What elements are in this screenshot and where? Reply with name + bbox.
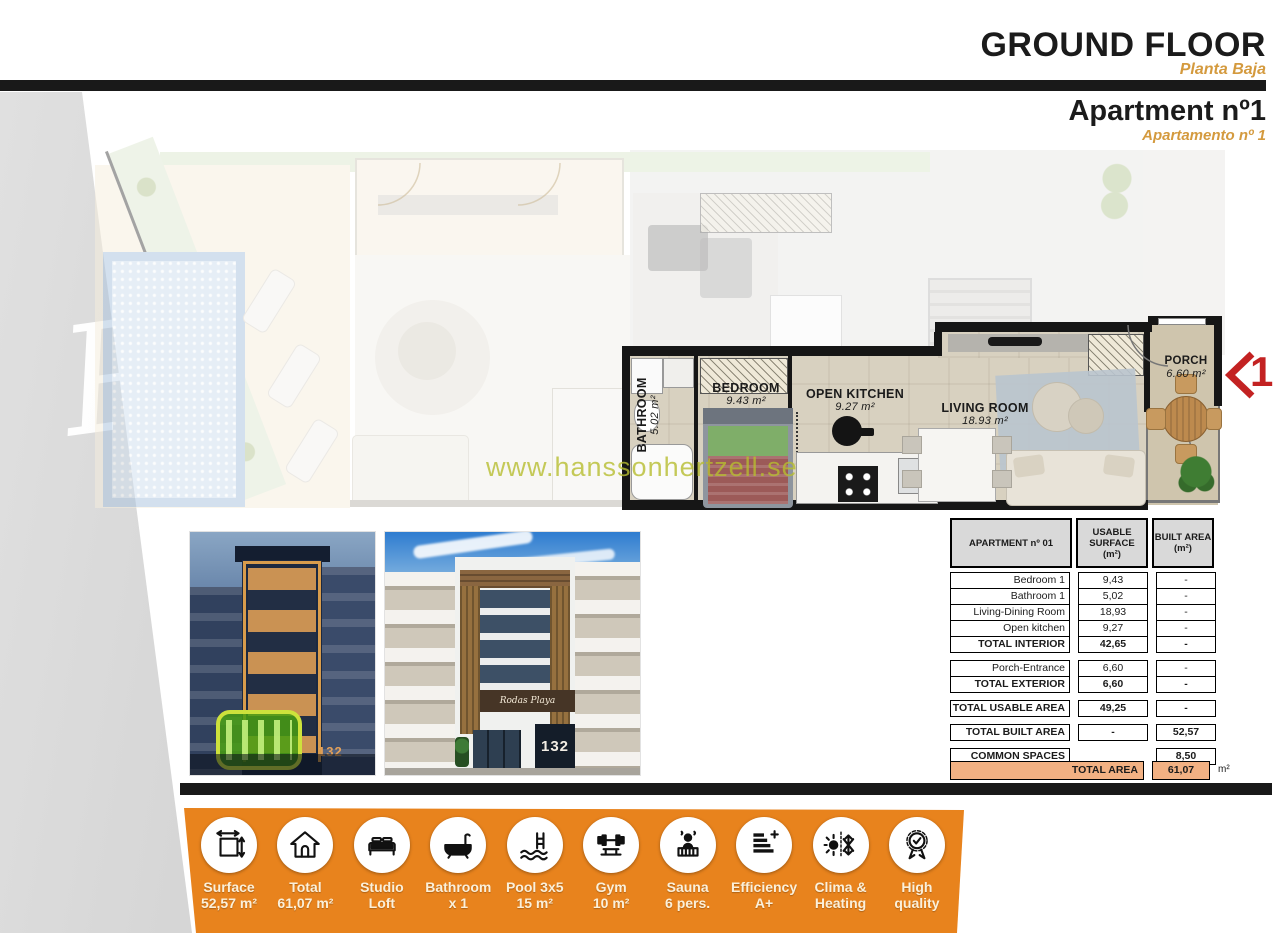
swimming-pool xyxy=(103,252,245,507)
total-area-value: 61,07 xyxy=(1152,761,1210,780)
building-photo-night: 132 xyxy=(190,532,375,775)
table-column: 6,606,60 xyxy=(1078,660,1148,693)
porch-chair xyxy=(1146,408,1166,430)
table-cell: Living-Dining Room xyxy=(951,604,1069,620)
feature-label: Surface xyxy=(192,879,266,895)
table-group: Bedroom 1Bathroom 1Living-Dining RoomOpe… xyxy=(950,572,1230,653)
climate-icon xyxy=(813,817,869,873)
wall xyxy=(1214,316,1222,406)
table-cell: 42,65 xyxy=(1079,636,1147,652)
sign-text: Rodas Playa xyxy=(500,696,556,706)
feature-label: Total xyxy=(268,879,342,895)
feature-label: Studio xyxy=(345,879,419,895)
porch-plant xyxy=(1176,452,1216,496)
table-cell: - xyxy=(1079,725,1147,740)
room-area: 9.27 m² xyxy=(795,401,915,414)
bed-headboard xyxy=(703,408,793,424)
chair xyxy=(992,470,1012,488)
chair xyxy=(902,470,922,488)
cloud xyxy=(413,532,534,559)
brochure-page: GROUND FLOOR Planta Baja Apartment nº1 A… xyxy=(0,0,1280,933)
table-cell: - xyxy=(1157,701,1215,716)
glass-balconies xyxy=(480,590,550,690)
table-column: Bedroom 1Bathroom 1Living-Dining RoomOpe… xyxy=(950,572,1070,653)
total-area-label: TOTAL AREA xyxy=(1072,764,1138,776)
room-area: 6.60 m² xyxy=(1158,368,1214,381)
table-cell: - xyxy=(1157,676,1215,692)
table-column: 49,25 xyxy=(1078,700,1148,717)
table-column: ----- xyxy=(1156,572,1216,653)
feature-value: x 1 xyxy=(421,895,495,911)
header-line: APARTMENT nº 01 xyxy=(952,538,1070,549)
table-cell: - xyxy=(1157,636,1215,652)
room-name: BEDROOM xyxy=(712,381,779,395)
wall xyxy=(622,346,630,510)
sauna-icon xyxy=(660,817,716,873)
tv xyxy=(988,337,1042,346)
table-cell: 5,02 xyxy=(1079,588,1147,604)
table-group: Porch-EntranceTOTAL EXTERIOR6,606,60-- xyxy=(950,660,1230,693)
porch-table xyxy=(1163,396,1209,442)
total-area-unit: m² xyxy=(1218,764,1230,775)
feature-sauna: Sauna 6 pers. xyxy=(651,817,725,911)
area-table-groups: Bedroom 1Bathroom 1Living-Dining RoomOpe… xyxy=(950,572,1230,772)
room-label-bedroom: BEDROOM 9.43 m² xyxy=(700,382,792,408)
table-column: Porch-EntranceTOTAL EXTERIOR xyxy=(950,660,1070,693)
footer-divider xyxy=(180,783,1272,795)
table-column: - xyxy=(1078,724,1148,741)
apartment-marker-number: 1 xyxy=(1250,348,1273,396)
website-watermark: www.hanssonhertzell.se xyxy=(486,452,798,483)
faded-pouf xyxy=(398,322,456,380)
table-cell: - xyxy=(1157,661,1215,676)
chair xyxy=(992,436,1012,454)
building-sign: Rodas Playa xyxy=(480,690,575,712)
table-cell: TOTAL INTERIOR xyxy=(951,636,1069,652)
feature-bathroom: Bathroom x 1 xyxy=(421,817,495,911)
chair xyxy=(902,436,922,454)
room-area: 9.43 m² xyxy=(700,395,792,408)
sofa-cushion xyxy=(1103,454,1135,478)
street-cars xyxy=(190,754,375,775)
room-label-living-room: LIVING ROOM 18.93 m² xyxy=(925,402,1045,428)
table-group: TOTAL USABLE AREA49,25- xyxy=(950,700,1230,717)
table-cell: Porch-Entrance xyxy=(951,661,1069,676)
feature-value: A+ xyxy=(727,895,801,911)
building-photo-day: Rodas Playa 132 xyxy=(385,532,640,775)
room-name: OPEN KITCHEN xyxy=(806,387,904,401)
dining-table xyxy=(918,428,996,502)
surface-icon xyxy=(201,817,257,873)
feature-pool: Pool 3x5 15 m² xyxy=(498,817,572,911)
table-cell: Bathroom 1 xyxy=(951,588,1069,604)
table-header-usable: USABLE SURFACE (m²) xyxy=(1076,518,1148,568)
header-line: (m²) xyxy=(1154,543,1212,554)
faded-closet xyxy=(700,193,832,233)
wall xyxy=(934,332,942,356)
room-area: 18.93 m² xyxy=(925,415,1045,428)
table-column: 9,435,0218,939,2742,65 xyxy=(1078,572,1148,653)
bed-icon xyxy=(354,817,410,873)
terrace-edge xyxy=(1148,500,1220,503)
feature-value: 52,57 m² xyxy=(192,895,266,911)
neighbor-building xyxy=(385,572,459,775)
table-cell: TOTAL EXTERIOR xyxy=(951,676,1069,692)
table-column: TOTAL BUILT AREA xyxy=(950,724,1070,741)
table-cell: 6,60 xyxy=(1079,661,1147,676)
kitchen-hood-arm xyxy=(858,428,874,436)
table-cell: 9,43 xyxy=(1079,573,1147,588)
feature-quality: High quality xyxy=(880,817,954,911)
room-label-open-kitchen: OPEN KITCHEN 9.27 m² xyxy=(795,388,915,414)
table-total-row: TOTAL AREA xyxy=(950,761,1144,780)
table-column: 52,57 xyxy=(1156,724,1216,741)
table-group: TOTAL BUILT AREA-52,57 xyxy=(950,724,1230,741)
header-line: (m²) xyxy=(1078,549,1146,560)
gym-icon xyxy=(583,817,639,873)
wood-frame xyxy=(460,586,480,734)
faded-sofa xyxy=(352,435,469,507)
faded-wall xyxy=(350,500,625,507)
wall xyxy=(935,322,1152,332)
bathroom-cabinet xyxy=(663,358,694,388)
faded-dining-table xyxy=(552,388,624,505)
feature-label: Sauna xyxy=(651,879,725,895)
table-cell: - xyxy=(1157,604,1215,620)
street-number: 132 xyxy=(541,738,569,755)
feature-value: 61,07 m² xyxy=(268,895,342,911)
table-cell: 52,57 xyxy=(1157,725,1215,740)
table-cell: 9,27 xyxy=(1079,620,1147,636)
quality-icon xyxy=(889,817,945,873)
house-icon xyxy=(277,817,333,873)
porch-window xyxy=(1158,318,1206,325)
feature-gym: Gym 10 m² xyxy=(574,817,648,911)
led-strip xyxy=(318,562,321,762)
table-cell: 49,25 xyxy=(1079,701,1147,716)
wall xyxy=(1144,332,1150,412)
stove xyxy=(838,466,878,502)
bathtub-icon xyxy=(430,817,486,873)
table-column: - xyxy=(1156,700,1216,717)
faded-palm xyxy=(1092,158,1142,226)
led-strip xyxy=(243,561,321,564)
street xyxy=(385,768,640,775)
header-line: USABLE SURFACE xyxy=(1078,527,1146,549)
room-label-porch: PORCH 6.60 m² xyxy=(1158,355,1214,381)
feature-label: Clima & xyxy=(804,879,878,895)
room-name: PORCH xyxy=(1164,355,1207,367)
feature-total: Total 61,07 m² xyxy=(268,817,342,911)
feature-value: 10 m² xyxy=(574,895,648,911)
feature-climate: Clima & Heating xyxy=(804,817,878,911)
feature-value: 6 pers. xyxy=(651,895,725,911)
table-column: TOTAL USABLE AREA xyxy=(950,700,1070,717)
feature-studio: Studio Loft xyxy=(345,817,419,911)
table-cell: Open kitchen xyxy=(951,620,1069,636)
table-cell: - xyxy=(1157,620,1215,636)
room-name: LIVING ROOM xyxy=(941,401,1028,415)
feature-label: Bathroom xyxy=(421,879,495,895)
feature-value: Heating xyxy=(804,895,878,911)
table-cell: 18,93 xyxy=(1079,604,1147,620)
porch-chair xyxy=(1206,408,1222,430)
efficiency-icon xyxy=(736,817,792,873)
table-cell: 6,60 xyxy=(1079,676,1147,692)
feature-label: Pool 3x5 xyxy=(498,879,572,895)
pool-icon xyxy=(507,817,563,873)
feature-value: quality xyxy=(880,895,954,911)
feature-label: Gym xyxy=(574,879,648,895)
pouf xyxy=(1068,398,1104,434)
table-cell: TOTAL USABLE AREA xyxy=(951,701,1069,716)
table-header-apartment: APARTMENT nº 01 xyxy=(950,518,1072,568)
entrance-plant xyxy=(455,737,469,767)
feature-efficiency: Efficiency A+ xyxy=(727,817,801,911)
table-cell: TOTAL BUILT AREA xyxy=(951,725,1069,740)
table-cell: - xyxy=(1157,588,1215,604)
wall xyxy=(622,346,940,356)
feature-value: 15 m² xyxy=(498,895,572,911)
gym-equipment xyxy=(648,225,708,271)
feature-label: High xyxy=(880,879,954,895)
sofa-cushion xyxy=(1013,454,1045,478)
gym-equipment xyxy=(700,238,752,298)
table-cell: - xyxy=(1157,573,1215,588)
table-column: -- xyxy=(1156,660,1216,693)
header-line: BUILT AREA xyxy=(1154,532,1212,543)
feature-surface: Surface 52,57 m² xyxy=(192,817,266,911)
feature-value: Loft xyxy=(345,895,419,911)
neighbor-building xyxy=(571,562,640,775)
table-header-built: BUILT AREA (m²) xyxy=(1152,518,1214,568)
features-row: Surface 52,57 m² Total 61,07 m² Studio L… xyxy=(192,817,954,911)
table-cell: Bedroom 1 xyxy=(951,573,1069,588)
faded-tv-bench xyxy=(378,195,558,215)
feature-label: Efficiency xyxy=(727,879,801,895)
room-name: BATHROOM xyxy=(635,377,649,452)
